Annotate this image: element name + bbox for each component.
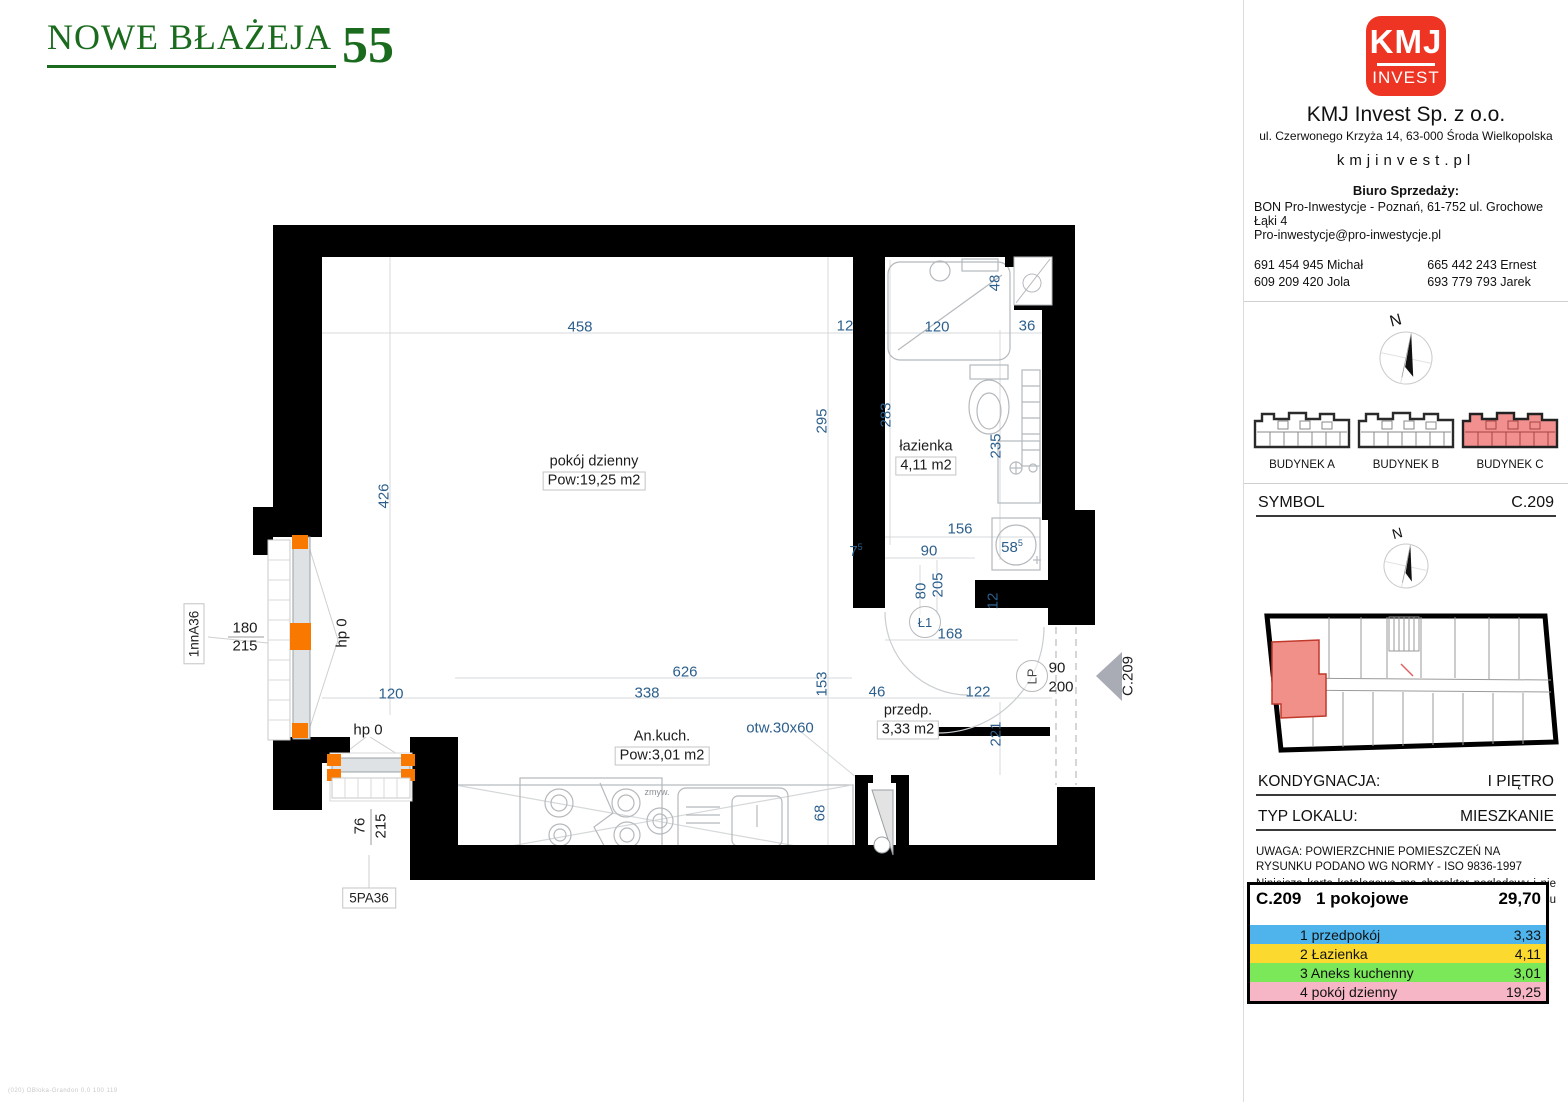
compass-large: N [1244,306,1568,403]
dim-label: 12 [985,593,1002,610]
area-row-name: 2 Łazienka [1250,946,1515,962]
shower-niche [1014,257,1052,305]
company-website: kmjinvest.pl [1244,152,1568,169]
area-row-name: 4 pokój dzienny [1250,984,1506,1000]
sales-office-title: Biuro Sprzedaży: [1254,183,1558,198]
room-area: 3,33 m2 [877,721,939,740]
dim-label: 168 [937,626,962,643]
sales-office-block: Biuro Sprzedaży: BON Pro-Inwestycje - Po… [1254,183,1558,242]
plot-stamp: (020) OBloka-Grandon 0.0 100 119 [8,1088,118,1094]
type-row: TYP LOKALU: MIESZKANIE [1256,806,1556,831]
buildings-row: BUDYNEK A BUDYNEK B [1244,405,1568,471]
area-table-total: 29,70 [1498,889,1541,909]
compass-n-label: N [1390,524,1404,542]
room-name: An.kuch. [615,729,710,745]
type-label: TYP LOKALU: [1258,808,1358,826]
building-b-label: BUDYNEK B [1354,459,1458,471]
dim-label: 221 [988,721,1005,746]
compass-needle-icon [1402,334,1421,377]
dim-label: 75 [849,542,862,560]
symbol-value: C.209 [1511,494,1554,512]
area-table: C.209 1 pokojowe 29,70 1 przedpokój3,332… [1247,882,1549,1004]
window-type-tag-left: 1nnA36 [184,604,205,665]
type-value: MIESZKANIE [1460,808,1554,826]
area-row: 2 Łazienka4,11 [1250,944,1546,963]
dim-label: 215 [232,638,257,655]
dim-label: 215 [373,813,390,838]
room-name: pokój dzienny [543,454,646,470]
building-a-icon [1252,405,1352,451]
area-row-value: 19,25 [1506,984,1546,1000]
symbol-row: SYMBOL C.209 [1256,492,1556,517]
area-table-rows: 1 przedpokój3,332 Łazienka4,113 Aneks ku… [1250,925,1546,1001]
room-name: łazienka [895,439,956,455]
logo-text-invest: INVEST [1366,68,1446,88]
dim-label: 68 [812,805,829,822]
room-label: łazienka4,11 m2 [895,439,956,476]
dim-label: hp 0 [353,722,382,739]
area-row-name: 1 przedpokój [1250,927,1514,943]
entry-door-tag: LP [1016,660,1048,692]
dim-label: 120 [378,686,403,703]
room-name: przedp. [877,703,939,719]
building-a-label: BUDYNEK A [1250,459,1354,471]
dim-label: 122 [965,684,990,701]
floor-row: KONDYGNACJA: I PIĘTRO [1256,771,1556,796]
dim-label: C.209 [1120,656,1137,696]
project-number: 55 [342,24,394,68]
dim-label: 458 [567,319,592,336]
dim-label: 76 [352,818,369,835]
area-table-type: 1 pokojowe [1316,889,1498,909]
entry-door-tag-label: LP [1025,668,1040,684]
dim-label: 80 [913,583,930,600]
dim-label: 205 [930,572,947,597]
dim-label: 90 [921,543,938,560]
building-b: BUDYNEK B [1354,405,1458,471]
floor-overview-icon [1251,604,1561,756]
dim-label: 295 [814,408,831,433]
dim-label: 626 [672,664,697,681]
dim-label: 200 [1048,679,1073,696]
room-area: 4,11 m2 [895,457,956,476]
dim-label: 12 [837,318,854,335]
symbol-label: SYMBOL [1258,494,1325,512]
dim-label: zmyw. [644,787,669,797]
phone-entry: 693 779 793 Jarek [1427,275,1558,289]
room-label: An.kuch.Pow:3,01 m2 [615,729,710,766]
building-c-label: BUDYNEK C [1458,459,1562,471]
compass-n-label: N [1388,311,1404,330]
phone-list: 691 454 945 Michał665 442 243 Ernest609 … [1254,258,1558,289]
room-area: Pow:19,25 m2 [543,472,646,491]
floor-label: KONDYGNACJA: [1258,773,1380,791]
logo-divider [1377,63,1435,66]
dim-label: 235 [988,433,1005,458]
dim-label: 156 [947,521,972,538]
window-bottom [327,753,415,801]
dim-label: 120 [924,319,949,336]
room-label: pokój dziennyPow:19,25 m2 [543,454,646,491]
area-row-value: 3,01 [1514,965,1546,981]
shaft-shower [872,790,893,855]
company-name: KMJ Invest Sp. z o.o. [1244,103,1568,127]
dim-label: 338 [634,685,659,702]
dim-label: 153 [814,671,831,696]
project-name: NOWE BŁAŻEJA [47,16,336,68]
dim-label: otw.30x60 [746,720,814,737]
area-row: 3 Aneks kuchenny3,01 [1250,963,1546,982]
kmj-logo: KMJ INVEST [1366,16,1446,96]
dim-label: 36 [1019,318,1036,335]
window-left [268,535,311,740]
building-b-icon [1356,405,1456,451]
dim-label: 180 [232,620,257,637]
dim-label: 48 [987,275,1004,292]
entry-arrow-icon [1096,652,1122,701]
floor-overview [1244,604,1568,761]
area-row-value: 3,33 [1514,927,1546,943]
area-row: 4 pokój dzienny19,25 [1250,982,1546,1001]
dim-label: 90 [1049,660,1066,677]
dim-label: 426 [376,483,393,508]
project-brand: NOWE BŁAŻEJA 55 [47,16,394,68]
building-a: BUDYNEK A [1250,405,1354,471]
compass-small: N [1244,521,1568,604]
divider [1244,483,1568,484]
dim-label: 585 [1001,538,1023,556]
area-row-name: 3 Aneks kuchenny [1250,965,1514,981]
phone-entry: 691 454 945 Michał [1254,258,1427,272]
area-table-header: C.209 1 pokojowe 29,70 [1250,885,1546,925]
logo-text-kmj: KMJ [1366,23,1446,61]
disclaimer-norm: UWAGA: POWIERZCHNIE POMIESZCZEŃ NA RYSUN… [1256,845,1556,875]
floor-plan-drawing [180,215,1160,915]
room-area: Pow:3,01 m2 [615,747,710,766]
company-address: ul. Czerwonego Krzyża 14, 63-000 Środa W… [1244,129,1568,143]
phone-entry: 609 209 420 Jola [1254,275,1427,289]
phone-entry: 665 442 243 Ernest [1427,258,1558,272]
area-row: 1 przedpokój3,33 [1250,925,1546,944]
sales-office-address: BON Pro-Inwestycje - Poznań, 61-752 ul. … [1254,200,1558,228]
room-label: przedp.3,33 m2 [877,703,939,740]
sales-office-email: Pro-inwestycje@pro-inwestycje.pl [1254,228,1558,242]
window-type-tag-bottom: 5PA36 [342,888,396,909]
building-c-highlighted: BUDYNEK C [1458,405,1562,471]
dim-label: hp 0 [334,618,351,647]
floor-plan: 4581212036482952832354261569058575802051… [180,215,1160,915]
compass-needle-icon [1403,545,1419,581]
floor-value: I PIĘTRO [1488,773,1554,791]
building-c-icon [1460,405,1560,451]
dim-label: 46 [869,684,886,701]
bath-door-tag: Ł1 [909,606,941,638]
divider [1244,301,1568,302]
area-row-value: 4,11 [1515,946,1546,962]
dim-label: 283 [878,402,895,427]
area-table-symbol: C.209 [1256,889,1316,909]
